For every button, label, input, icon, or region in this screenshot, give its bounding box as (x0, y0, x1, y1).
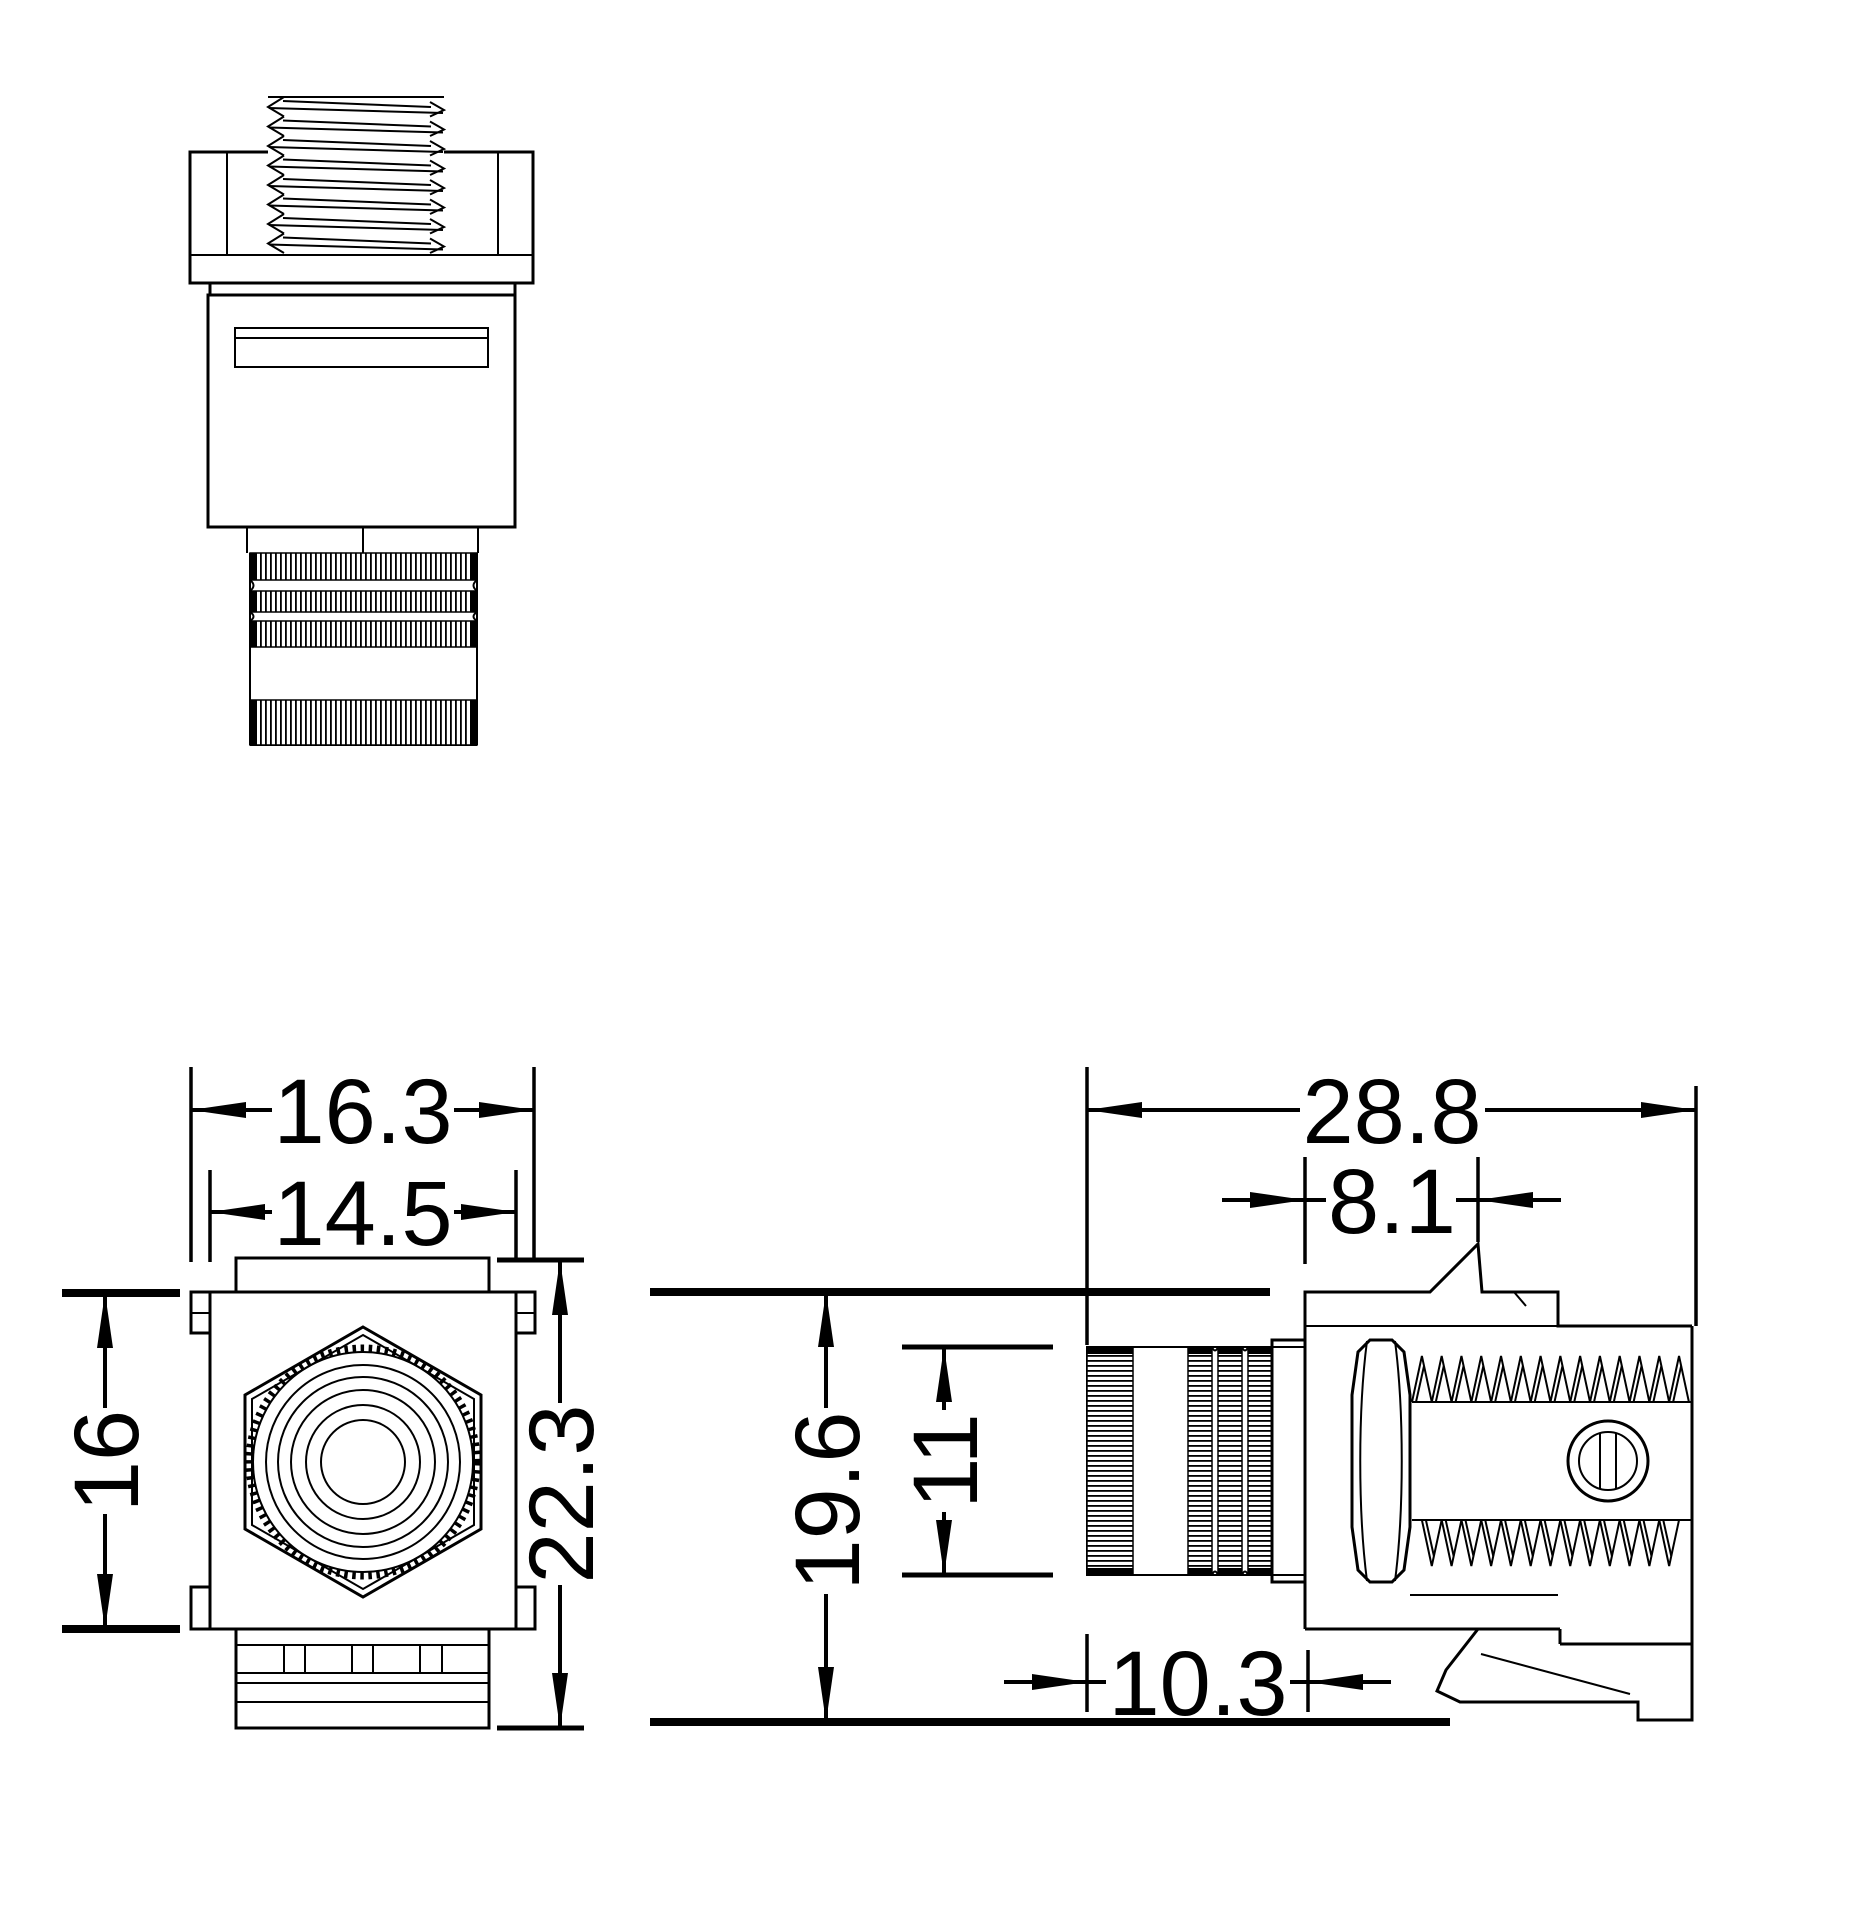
knurl-cap (250, 553, 257, 580)
thread-crest-line (283, 121, 431, 127)
thread-crest-line (283, 101, 431, 107)
latch-hook-inner (1481, 1654, 1630, 1694)
top-view (190, 97, 533, 745)
dim-label-16-3: 16.3 (273, 1061, 452, 1163)
hex-nut-outer (245, 1327, 481, 1597)
thread-tooth-right (430, 141, 444, 156)
thread-root-line (269, 206, 443, 211)
thread-flank-line (1426, 1520, 1434, 1556)
arrowhead (191, 1102, 246, 1118)
knurl-band (1188, 1347, 1212, 1575)
thread-crest-line (283, 160, 431, 166)
knurl-band (1087, 1347, 1133, 1575)
arrowhead (97, 1293, 113, 1348)
arrowhead (1032, 1674, 1087, 1690)
thread-flank-line (1653, 1366, 1661, 1402)
technical-drawing: 16.3 14.5 16 22.3 28 (0, 0, 1857, 1908)
thread-flank-line (1495, 1366, 1503, 1402)
thread-tooth-left (268, 195, 284, 215)
nut-facet-left (1360, 1341, 1367, 1581)
thread-flank-line (1436, 1366, 1444, 1402)
arrowhead (1641, 1102, 1696, 1118)
arrowhead (97, 1574, 113, 1629)
dim-front-height-total: 22.3 (497, 1260, 613, 1728)
knurl-band (250, 700, 477, 745)
thread-tooth-right (430, 102, 444, 117)
side-knurl-bands (1087, 1347, 1272, 1575)
dim-label-11: 11 (895, 1413, 997, 1509)
dim-front-height: 16 (56, 1293, 180, 1629)
arrowhead (818, 1292, 834, 1347)
arrowhead (1087, 1102, 1142, 1118)
nut-facet-right (1395, 1341, 1402, 1581)
coupler-circle-4 (291, 1390, 435, 1534)
knurl-cap (1188, 1568, 1212, 1575)
dim-label-22-3: 22.3 (511, 1404, 613, 1583)
knurl-cap (1087, 1347, 1133, 1354)
top-view-knurl-bands (250, 553, 477, 745)
thread-tooth-right (430, 180, 444, 195)
thread-flank-line (1456, 1366, 1464, 1402)
coupler-bore (321, 1420, 405, 1504)
thread-flank-line (1515, 1366, 1523, 1402)
thread-crest-line (283, 238, 431, 244)
thread-tooth-right (430, 239, 444, 254)
front-tab-bottom-right (516, 1587, 535, 1629)
thread-tooth-left (268, 117, 284, 137)
dim-label-8-1: 8.1 (1328, 1151, 1456, 1253)
thread-flank-line (1475, 1366, 1483, 1402)
thread-flank-line (1574, 1366, 1582, 1402)
arrowhead (1250, 1192, 1305, 1208)
arrowhead (936, 1347, 952, 1402)
thread-root-line (269, 225, 443, 230)
side-collar-plate (1272, 1340, 1305, 1582)
arrowhead (210, 1204, 265, 1220)
dim-side-height-total: 19.6 (650, 1292, 1450, 1722)
top-view-body (208, 295, 515, 527)
thread-flank-line (1554, 1366, 1562, 1402)
thread-flank-line (1643, 1520, 1651, 1556)
knurl-cap (1248, 1568, 1272, 1575)
front-tab-bottom-left (191, 1587, 210, 1629)
bracket-outline (1305, 1244, 1692, 1629)
thread-root-line (269, 128, 443, 133)
thread-root-line (269, 167, 443, 172)
dim-side-barrel-dia: 11 (895, 1347, 1053, 1575)
knurl-cap (470, 591, 477, 612)
thread-flank-line (1673, 1366, 1681, 1402)
thread-tooth-left (268, 156, 284, 176)
thread-flank-line (1564, 1520, 1572, 1556)
knurl-cap (470, 700, 477, 745)
bottom-slot-dividers (284, 1645, 442, 1673)
thread-root-line (269, 186, 443, 191)
top-view-flange (190, 152, 533, 283)
thread-crest-line (283, 199, 431, 205)
thread-tooth-right (430, 200, 444, 215)
coupler-circle-1 (253, 1352, 473, 1572)
arrowhead (479, 1102, 534, 1118)
knurl-cap (250, 621, 257, 647)
thread-root-line (269, 147, 443, 152)
dim-label-28-8: 28.8 (1302, 1061, 1481, 1163)
thread-flank-line (1634, 1366, 1642, 1402)
bracket-notch (1514, 1292, 1526, 1306)
knurl-cap (1188, 1347, 1212, 1354)
thread-tooth-right (430, 161, 444, 176)
thread-flank-line (1624, 1520, 1632, 1556)
thread-flank-line (1505, 1520, 1513, 1556)
arrowhead (1308, 1674, 1363, 1690)
top-view-thread-stud (268, 97, 444, 253)
thread-tooth-left (268, 136, 284, 156)
thread-tooth-right (430, 219, 444, 234)
drawing-page: 16.3 14.5 16 22.3 28 (0, 0, 1857, 1908)
arrowhead (1478, 1192, 1533, 1208)
dim-side-latch-depth: 8.1 (1222, 1151, 1561, 1264)
top-view-slot (235, 328, 488, 367)
knurl-band (1218, 1347, 1242, 1575)
arrowhead (461, 1204, 516, 1220)
knurl-band (250, 553, 477, 580)
knurl-band (250, 591, 477, 612)
thread-flank-line (1446, 1520, 1454, 1556)
arrowhead (552, 1260, 568, 1315)
set-screw-inner (1579, 1432, 1637, 1490)
knurl-cap (1248, 1347, 1272, 1354)
thread-flank-line (1416, 1366, 1424, 1402)
coupler-circle-5 (306, 1405, 420, 1519)
thread-flank-line (1604, 1520, 1612, 1556)
thread-flank-line (1545, 1520, 1553, 1556)
arrowhead (818, 1667, 834, 1722)
coupler-circle-2 (266, 1365, 460, 1559)
knurl-cap (1087, 1568, 1133, 1575)
dim-label-19-6: 19.6 (777, 1411, 879, 1590)
coupler-circle-3 (278, 1377, 448, 1547)
thread-flank-line (1663, 1520, 1671, 1556)
side-thread-stud (1412, 1356, 1692, 1566)
arrowhead (936, 1520, 952, 1575)
thread-tooth-left (268, 234, 284, 254)
thread-flank-line (1485, 1520, 1493, 1556)
knurl-cap (470, 553, 477, 580)
arrowhead (552, 1673, 568, 1728)
knurl-band (250, 621, 477, 647)
thread-tooth-left (268, 214, 284, 234)
thread-flank-line (1614, 1366, 1622, 1402)
knurl-cap (1218, 1347, 1242, 1354)
knurl-cap (250, 591, 257, 612)
thread-tooth-left (268, 175, 284, 195)
dim-label-14-5: 14.5 (273, 1163, 452, 1265)
knurl-cap (470, 621, 477, 647)
thread-flank-line (1594, 1366, 1602, 1402)
thread-tooth-left (268, 97, 284, 117)
thread-root-line (269, 108, 443, 113)
front-bottom-section (236, 1629, 489, 1728)
knurl-band (1248, 1347, 1272, 1575)
thread-crest-line (283, 179, 431, 185)
thread-flank-line (1525, 1520, 1533, 1556)
serration-ring (249, 1348, 477, 1576)
dim-label-10-3: 10.3 (1108, 1633, 1287, 1735)
thread-flank-line (1584, 1520, 1592, 1556)
thread-crest-line (283, 218, 431, 224)
dim-label-16: 16 (56, 1410, 158, 1512)
front-view (191, 1258, 535, 1728)
knurl-cap (1218, 1568, 1242, 1575)
thread-flank-line (1465, 1520, 1473, 1556)
thread-root-line (269, 245, 443, 250)
thread-flank-line (1535, 1366, 1543, 1402)
thread-crest-line (283, 140, 431, 146)
knurl-cap (250, 700, 257, 745)
thread-tooth-right (430, 122, 444, 137)
